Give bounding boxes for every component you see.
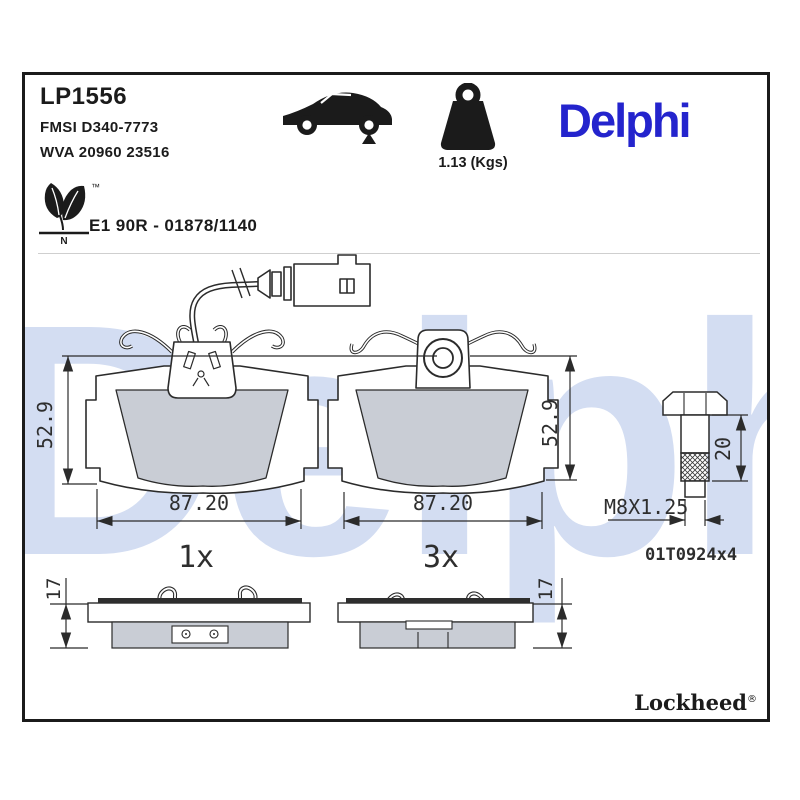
car-rear-axle-icon xyxy=(279,83,397,150)
bolt-part-ref: 01T0924x4 xyxy=(645,545,737,565)
part-number-block: LP1556 FMSI D340-7773 WVA 20960 23516 xyxy=(40,83,170,161)
lockheed-logo: Lockheed® xyxy=(634,690,757,715)
eco-leaf-icon: N ™ xyxy=(33,178,103,251)
delphi-logo: Delphi xyxy=(558,93,690,148)
weight-value: 1.13 (Kgs) xyxy=(413,155,533,171)
fmsi-number: FMSI D340-7773 xyxy=(40,119,170,136)
pad-left-height-dim: 52.9 xyxy=(33,401,57,449)
lockheed-wordmark: Lockheed xyxy=(634,690,747,715)
pad-right-height-dim: 52.9 xyxy=(538,399,562,447)
spec-sheet-frame: Delphi LP1556 FMSI D340-7773 WVA 20960 2… xyxy=(22,72,770,722)
wva-number: WVA 20960 23516 xyxy=(40,144,170,161)
approval-number: E1 90R - 01878/1140 xyxy=(89,216,257,236)
eco-tm: ™ xyxy=(91,182,100,192)
eco-n-label: N xyxy=(60,236,67,246)
rear-axle-arrow xyxy=(362,133,376,144)
pad-right-width-dim: 87.20 xyxy=(413,491,473,515)
pad-right-qty: 3x xyxy=(423,540,459,575)
brake-pad-front-right xyxy=(328,330,558,493)
side-right-thickness-dim: 17 xyxy=(535,578,557,601)
brake-pad-side-left xyxy=(88,588,310,648)
registered-mark: ® xyxy=(747,694,757,705)
part-number: LP1556 xyxy=(40,83,170,111)
pad-left-qty: 1x xyxy=(178,540,214,575)
technical-drawing: 52.9 87.20 52.9 87.20 1x 3x 20 M8X1.25 0… xyxy=(25,253,770,722)
bolt-length-dim: 20 xyxy=(711,437,735,461)
bolt-thread-label: M8X1.25 xyxy=(604,495,688,519)
pad-left-width-dim: 87.20 xyxy=(169,491,229,515)
side-left-thickness-dim: 17 xyxy=(43,578,65,601)
brake-pad-side-right xyxy=(338,594,533,648)
weight-icon xyxy=(435,83,501,158)
